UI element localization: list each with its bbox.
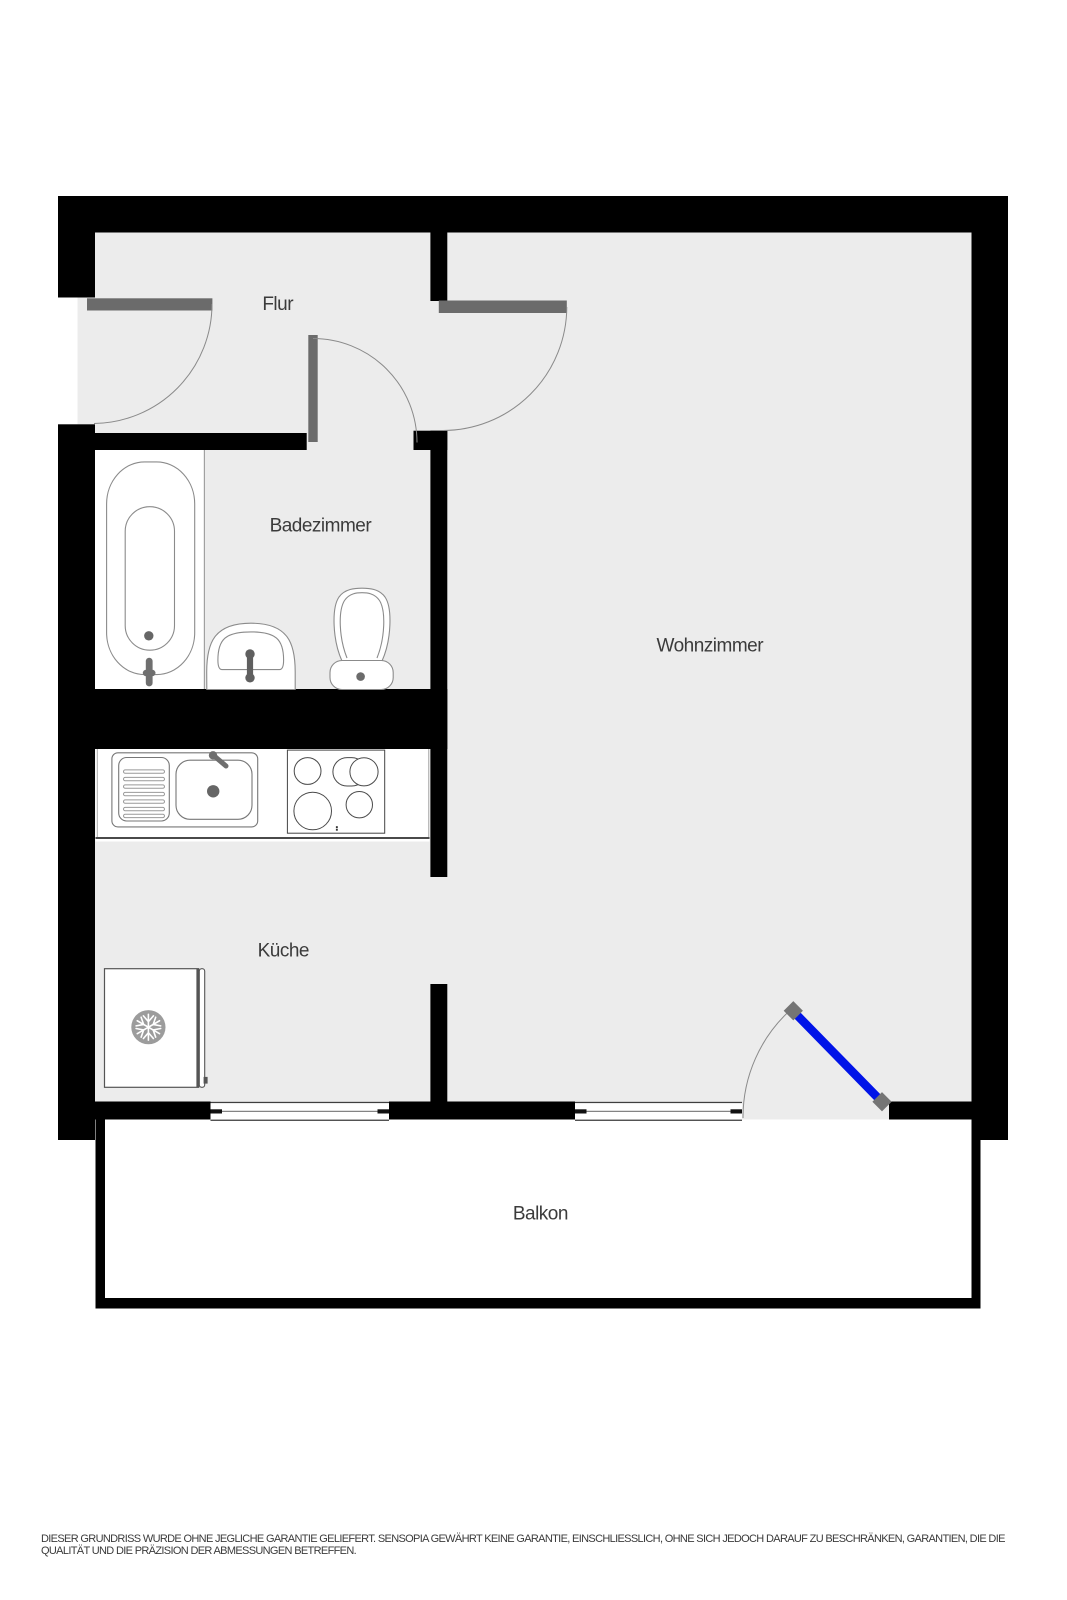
svg-text:QUALITÄT UND DIE PRÄZISION DER: QUALITÄT UND DIE PRÄZISION DER ABMESSUNG… [41,1545,357,1557]
svg-text:Küche: Küche [258,940,309,961]
svg-text:Wohnzimmer: Wohnzimmer [657,635,765,656]
svg-text:Flur: Flur [262,294,294,315]
svg-text:Badezimmer: Badezimmer [270,516,373,537]
svg-text:DIESER GRUNDRISS WURDE OHNE JE: DIESER GRUNDRISS WURDE OHNE JEGLICHE GAR… [41,1533,1005,1545]
svg-text:Balkon: Balkon [513,1204,568,1225]
